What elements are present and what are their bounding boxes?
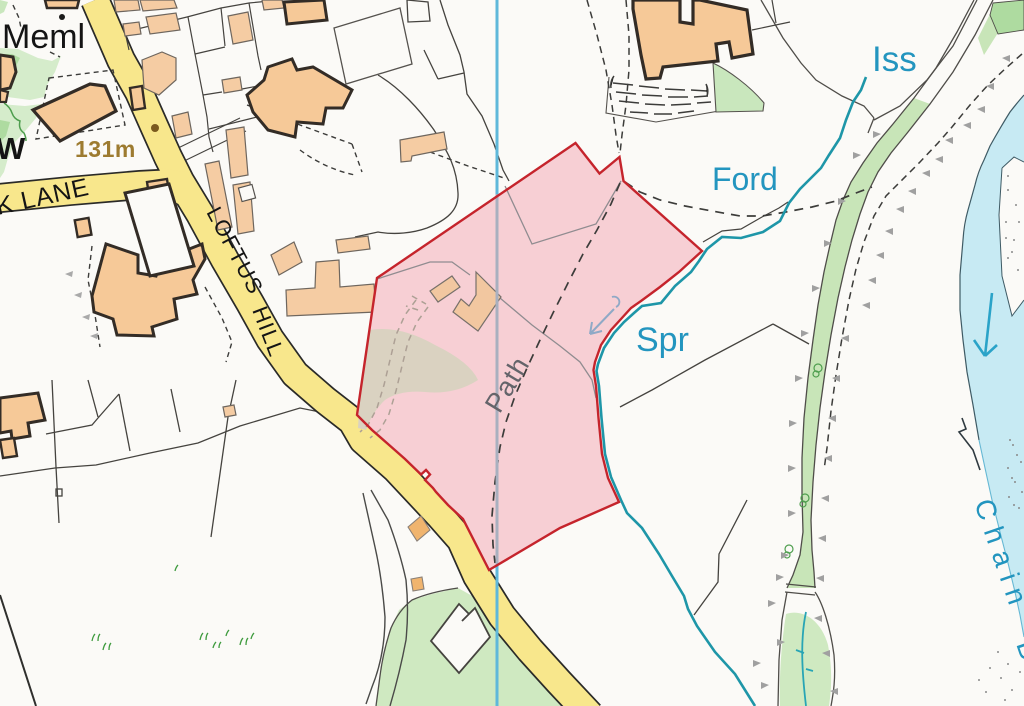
svg-text:W: W	[0, 131, 26, 166]
svg-text:Spr: Spr	[636, 321, 689, 359]
svg-text:Meml: Meml	[2, 18, 85, 56]
svg-text:131m: 131m	[75, 136, 136, 162]
svg-text:Ford: Ford	[712, 161, 778, 197]
svg-text:Iss: Iss	[872, 40, 917, 79]
